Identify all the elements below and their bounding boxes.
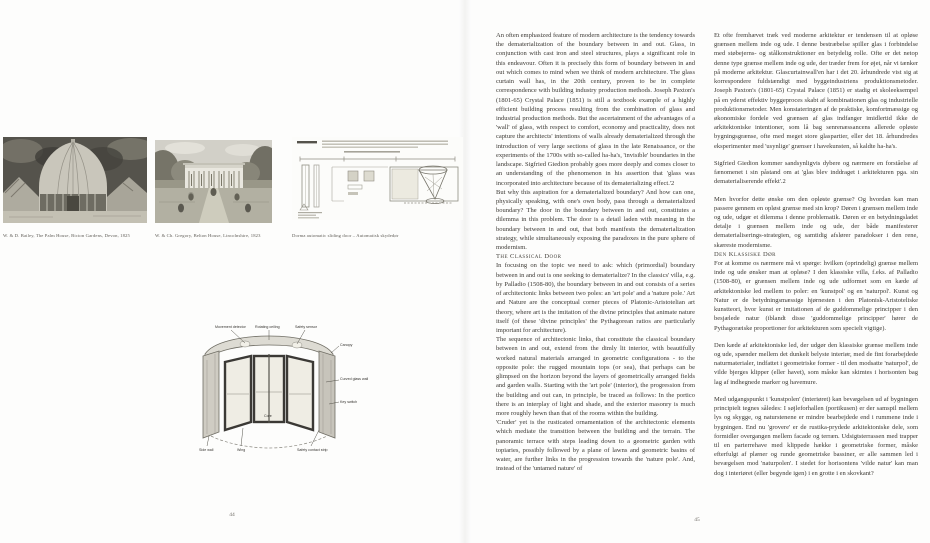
paragraph: The sequence of architectonic links, tha… [496, 335, 695, 418]
figure-caption: W. & D. Bailey, The Palm House, Bicton G… [3, 233, 130, 238]
diagram-label-safety-sensor: Safety sensor [295, 325, 318, 329]
diagram-label-glass-wall: Curved glass wall [340, 377, 368, 381]
diagram-label-canopy: Canopy [340, 343, 353, 347]
diagram-label-key-switch: Key switch [340, 400, 357, 404]
paragraph: Et ofte fremhævet træk ved moderne arkit… [714, 31, 918, 151]
paragraph: Med udgangspunkt i 'kunstpolen' (interiø… [714, 395, 918, 478]
paragraph: Den kæde af arkitektoniske led, der udgø… [714, 341, 918, 387]
diagram-label-safety-strip: Safety contact strip [297, 448, 328, 452]
diagram-label-core: Core [264, 414, 272, 418]
figure-caption: Dorma automatic sliding door – Automatis… [292, 233, 399, 238]
diagram-label-rotating-ceiling: Rotating ceiling [255, 325, 280, 329]
belton-house-photo [155, 140, 272, 223]
section-heading-english: The Classical Door [496, 252, 695, 261]
paragraph: For at komme os nærmere må vi spørge: hv… [714, 259, 918, 333]
figure-caption: W. & Ch. Gregory, Belton House, Lincolns… [155, 233, 261, 238]
paragraph: In focusing on the topic we need to ask:… [496, 261, 695, 335]
diagram-label-movement-detector: Movement detector [215, 325, 247, 329]
left-page-number: 44 [220, 512, 244, 518]
diagram-label-side-wall: Side wall [199, 448, 214, 452]
diagram-label-wing: Wing [237, 448, 245, 452]
paragraph: Sigfried Giedion kommer sandsynligvis dy… [714, 159, 918, 187]
paragraph: Men hvorfor dette ønske om den opløste g… [714, 195, 918, 250]
english-text-column: An often emphasized feature of modern ar… [496, 31, 695, 474]
page-gutter [459, 0, 471, 543]
palm-house-photo [3, 137, 147, 223]
danish-text-column: Et ofte fremhævet træk ved moderne arkit… [714, 31, 918, 478]
sliding-door-drawing [292, 137, 463, 220]
paragraph: But why this aspiration for a dematerial… [496, 188, 695, 253]
paragraph: An often emphasized feature of modern ar… [496, 31, 695, 188]
right-page-number: 45 [685, 517, 709, 523]
revolving-door-diagram: Movement detector Rotating ceiling Safet… [193, 320, 345, 455]
book-spread: W. & D. Bailey, The Palm House, Bicton G… [0, 0, 930, 543]
paragraph: 'Cruder' yet is the rusticated ornamenta… [496, 418, 695, 473]
section-heading-danish: Den Klassiske Dør [714, 250, 918, 259]
